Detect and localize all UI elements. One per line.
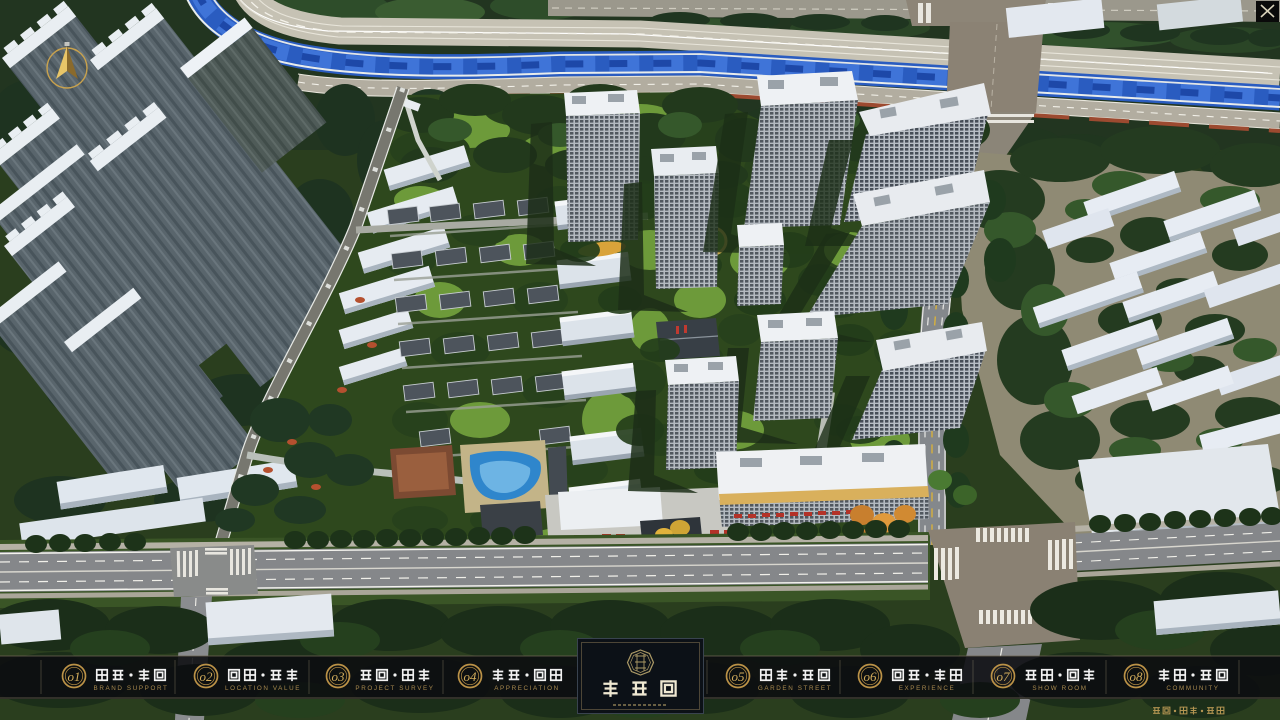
svg-text:o8: o8 [1130,669,1144,684]
svg-text:o5: o5 [732,669,746,684]
svg-text:SHOW ROOM: SHOW ROOM [1032,685,1087,692]
svg-text:o1: o1 [68,669,81,684]
svg-text:o7: o7 [997,669,1011,684]
svg-text:GARDEN STREET: GARDEN STREET [758,685,832,692]
svg-text:COMMUNITY: COMMUNITY [1166,685,1219,692]
svg-text:o2: o2 [200,669,214,684]
svg-text:APPRECIATION: APPRECIATION [494,685,560,692]
svg-text:o3: o3 [332,669,346,684]
svg-text:LOCATION VALUE: LOCATION VALUE [225,685,301,692]
svg-text:PROJECT SURVEY: PROJECT SURVEY [355,685,434,692]
svg-text:BRAND SUPPORT: BRAND SUPPORT [94,685,169,692]
svg-text:o6: o6 [864,669,878,684]
svg-text:o4: o4 [464,669,478,684]
svg-text:EXPERIENCE: EXPERIENCE [899,685,956,692]
